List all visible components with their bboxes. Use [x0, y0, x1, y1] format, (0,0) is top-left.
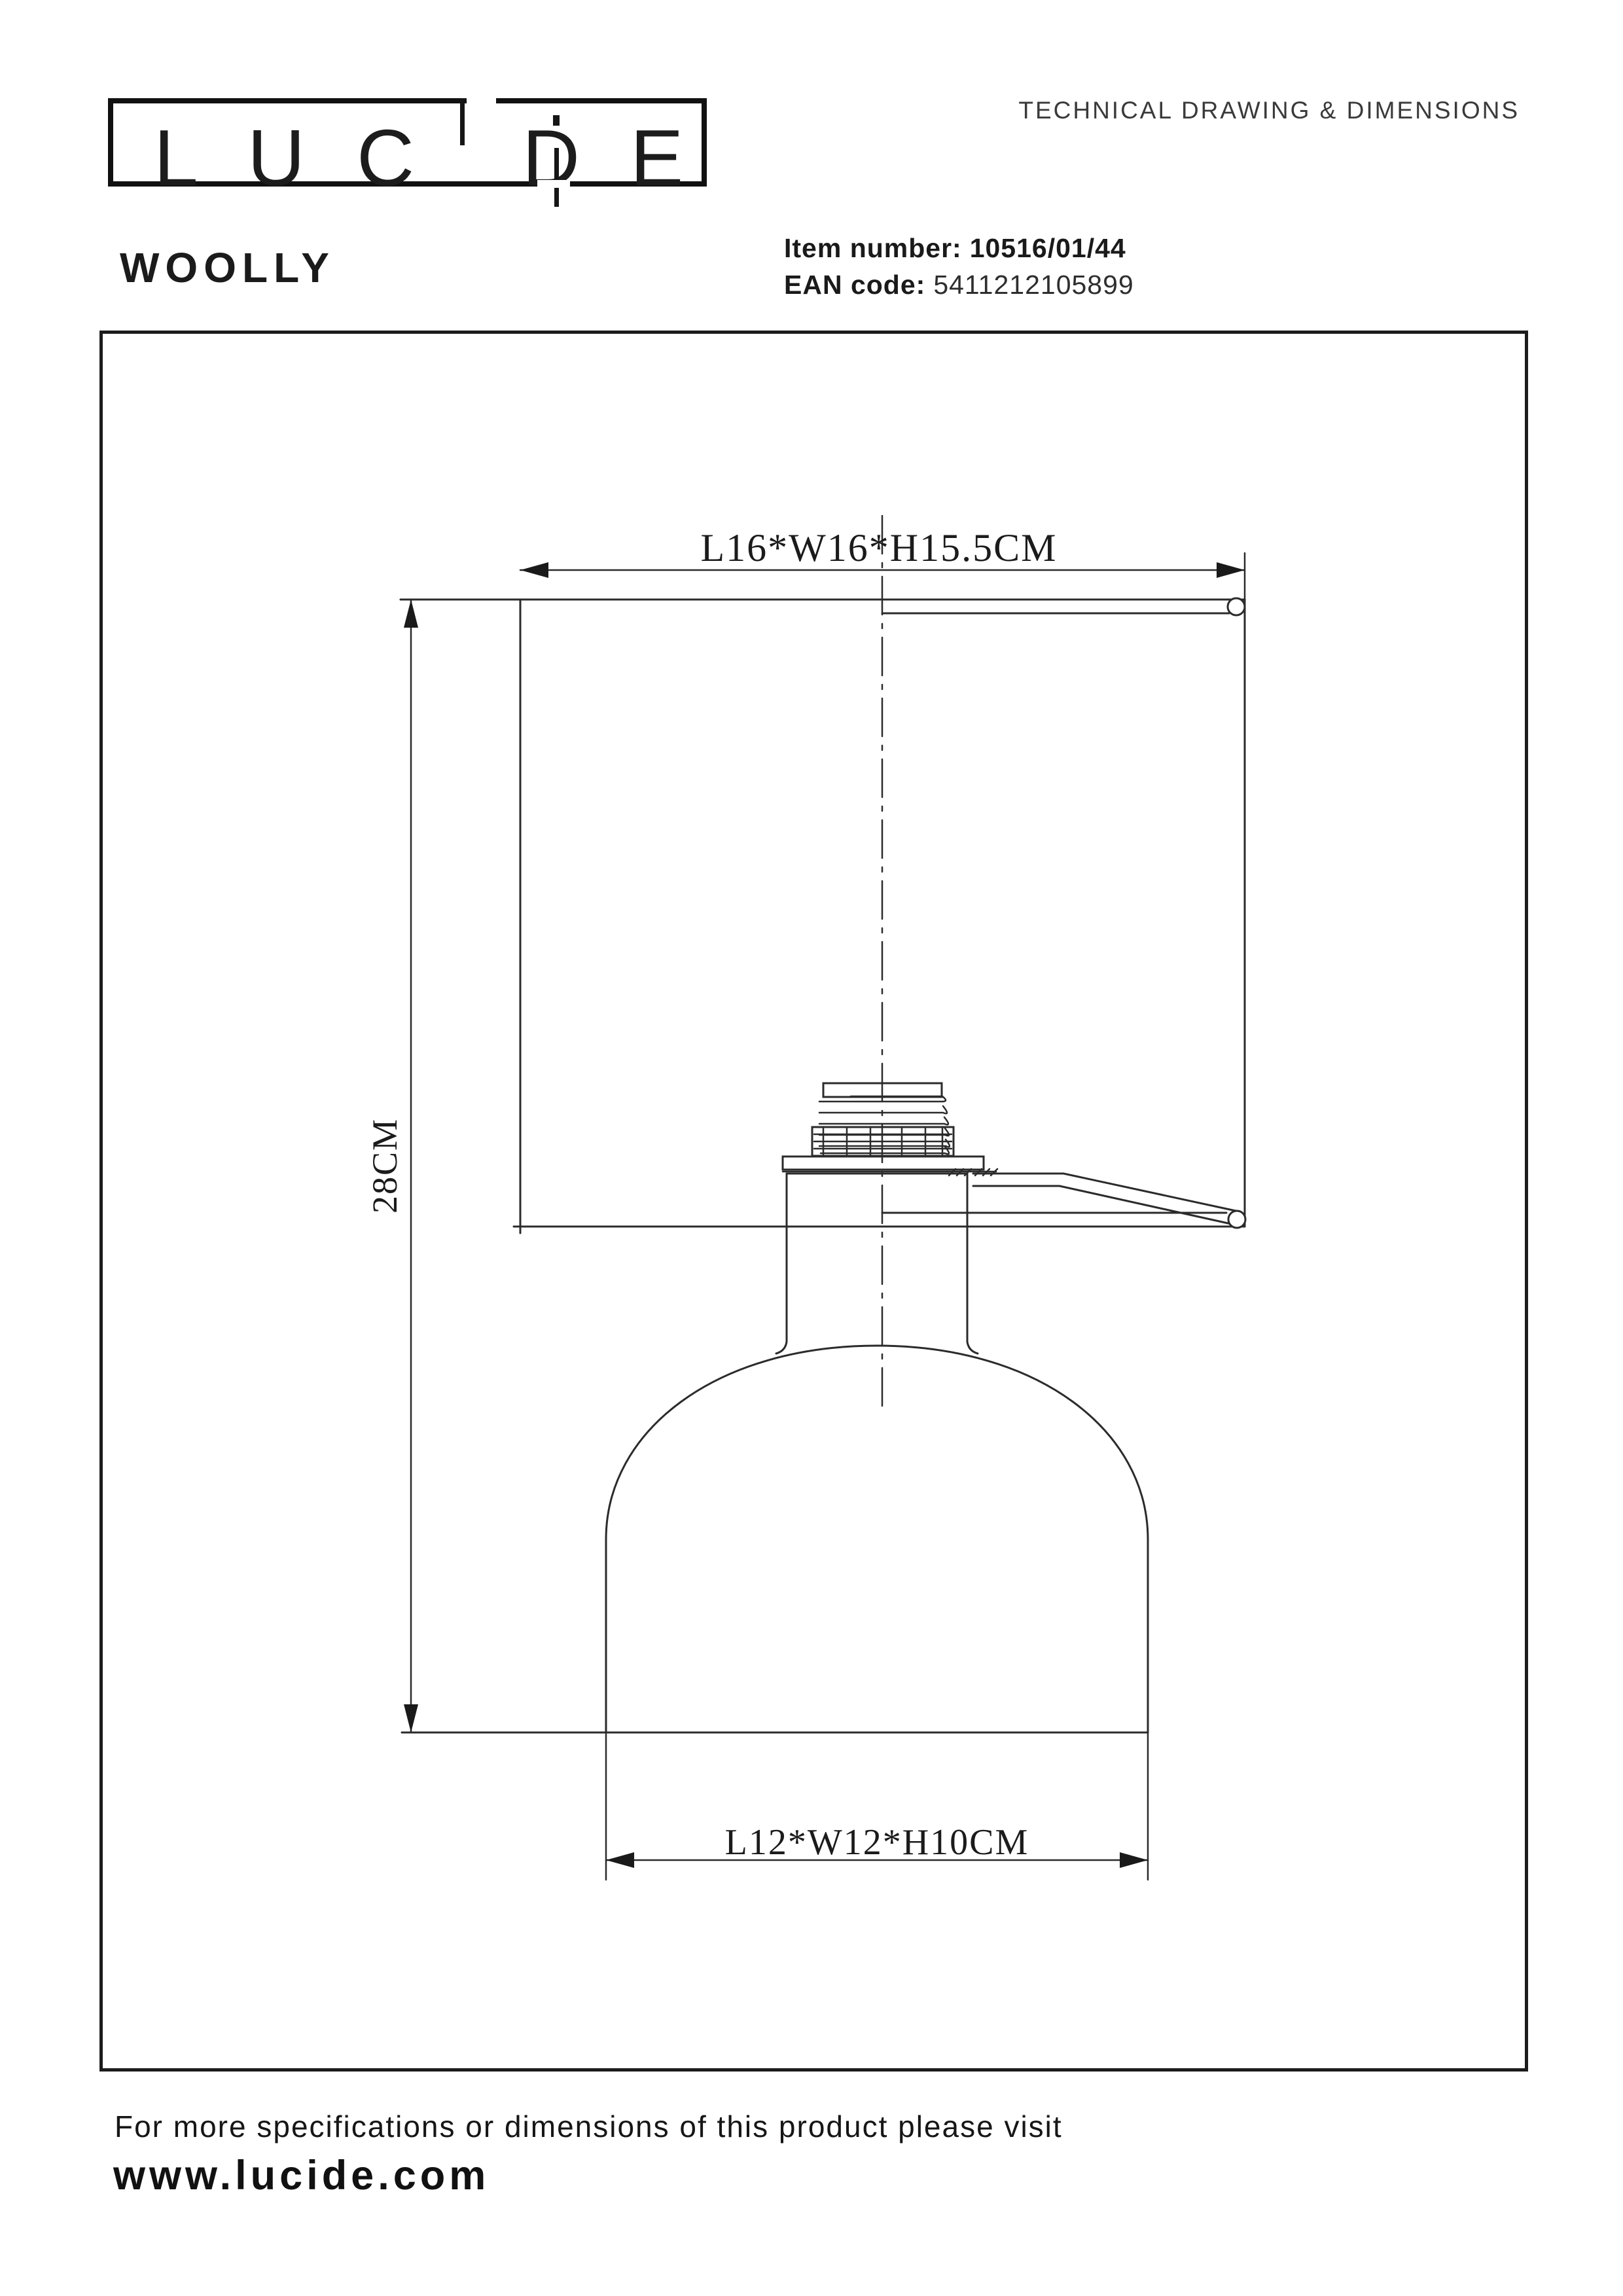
- product-name: WOOLLY: [120, 243, 335, 292]
- item-number-row: Item number:10516/01/44: [784, 233, 1126, 264]
- logo-i-stem: [554, 148, 559, 207]
- logo-letter-e: E: [630, 118, 683, 198]
- ean-code-value: 5411212105899: [933, 270, 1133, 300]
- ean-code-label: EAN code:: [784, 270, 925, 300]
- item-number-label: Item number:: [784, 233, 962, 263]
- logo-letter-u: U: [247, 118, 305, 198]
- drawing-frame: [99, 331, 1528, 2072]
- logo-letter-l: L: [154, 118, 198, 198]
- item-number-value: 10516/01/44: [970, 233, 1126, 263]
- footer-note: For more specifications or dimensions of…: [115, 2109, 1063, 2144]
- logo-i-dot: [553, 115, 560, 126]
- logo-bottom-border-gap: [537, 180, 570, 188]
- footer-website: www.lucide.com: [113, 2152, 490, 2199]
- ean-code-row: EAN code:5411212105899: [784, 270, 1134, 300]
- technical-sheet-page: L U C D E TECHNICAL DRAWING & DIMENSIONS…: [0, 0, 1623, 2296]
- doc-title: TECHNICAL DRAWING & DIMENSIONS: [1018, 97, 1520, 124]
- logo-top-border-gap: [467, 97, 496, 105]
- lucide-logo: L U C D E: [108, 98, 707, 187]
- logo-letter-c: C: [357, 118, 414, 198]
- logo-c-ascender: [460, 98, 465, 145]
